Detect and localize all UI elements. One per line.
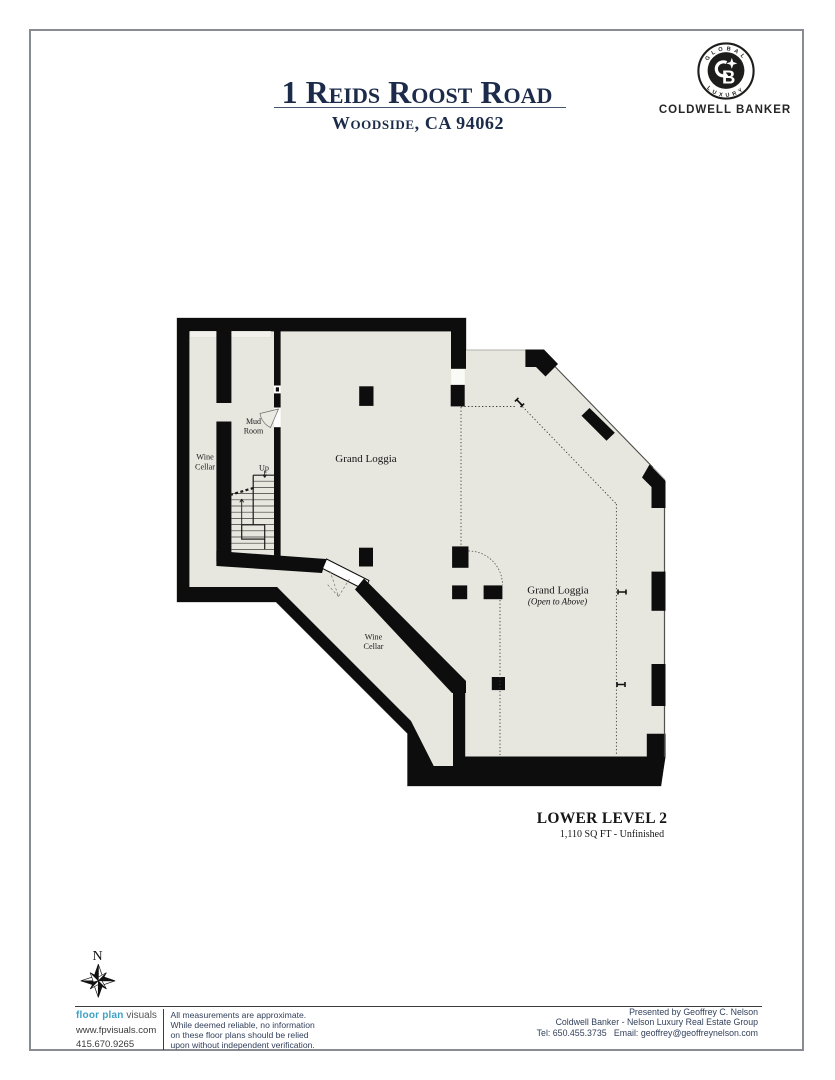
svg-text:Grand Loggia: Grand Loggia [527,585,589,597]
svg-text:Wine: Wine [365,633,383,642]
svg-text:Mud: Mud [246,417,261,426]
svg-text:Grand Loggia: Grand Loggia [335,453,397,465]
svg-text:Up: Up [259,464,269,473]
svg-text:Wine: Wine [196,453,214,462]
svg-text:(Open to Above): (Open to Above) [528,597,587,607]
svg-text:Cellar: Cellar [363,642,383,651]
svg-text:Cellar: Cellar [195,462,215,471]
svg-text:Room: Room [244,426,264,435]
svg-text:N: N [92,949,102,964]
